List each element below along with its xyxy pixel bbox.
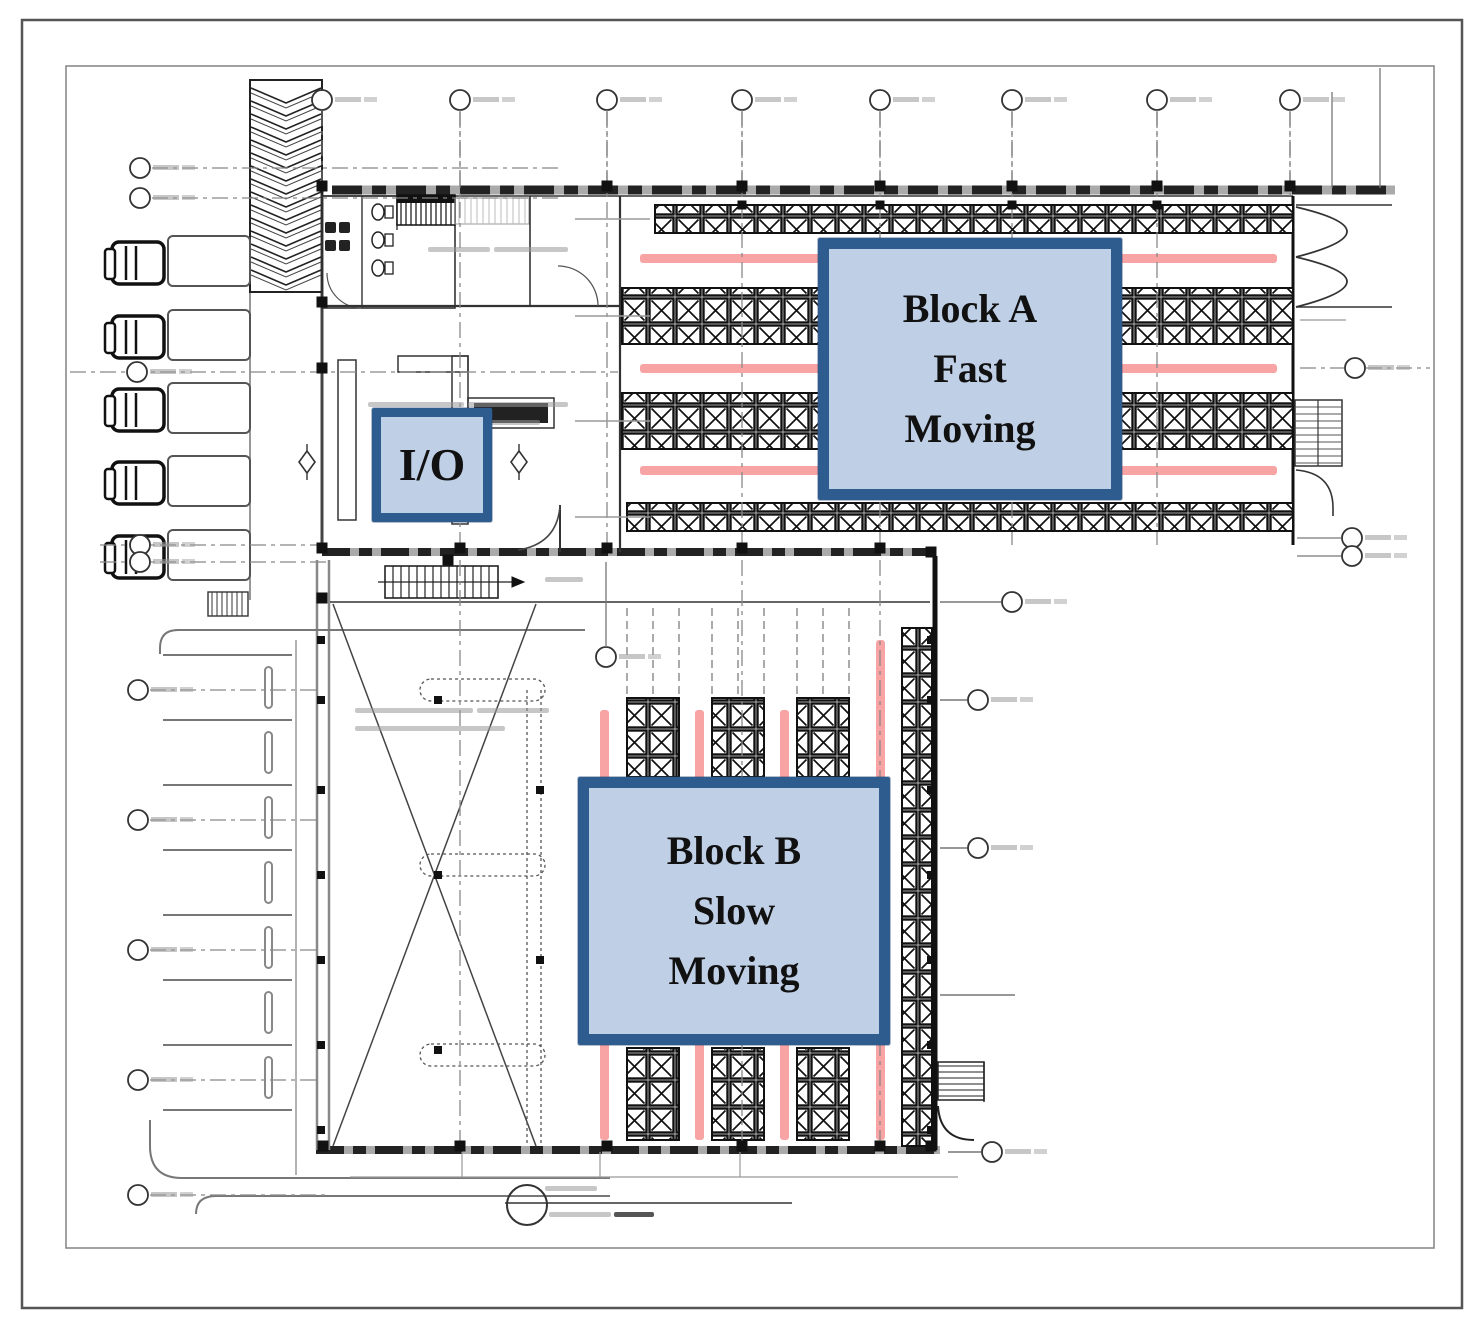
block-a-line3: Moving <box>904 399 1035 459</box>
block-a-title: Block A <box>903 279 1037 339</box>
block-b-label: Block B Slow Moving <box>578 777 890 1045</box>
io-text: I/O <box>399 440 465 491</box>
block-b-line2: Slow <box>693 881 775 941</box>
floorplan-linework <box>0 0 1484 1328</box>
block-a-line2: Fast <box>933 339 1006 399</box>
warehouse-floor-plan: Block A Fast Moving Block B Slow Moving … <box>0 0 1484 1328</box>
block-a-label: Block A Fast Moving <box>818 238 1122 500</box>
block-b-title: Block B <box>667 821 801 881</box>
block-b-line3: Moving <box>668 941 799 1001</box>
io-point-label: I/O <box>372 408 492 522</box>
